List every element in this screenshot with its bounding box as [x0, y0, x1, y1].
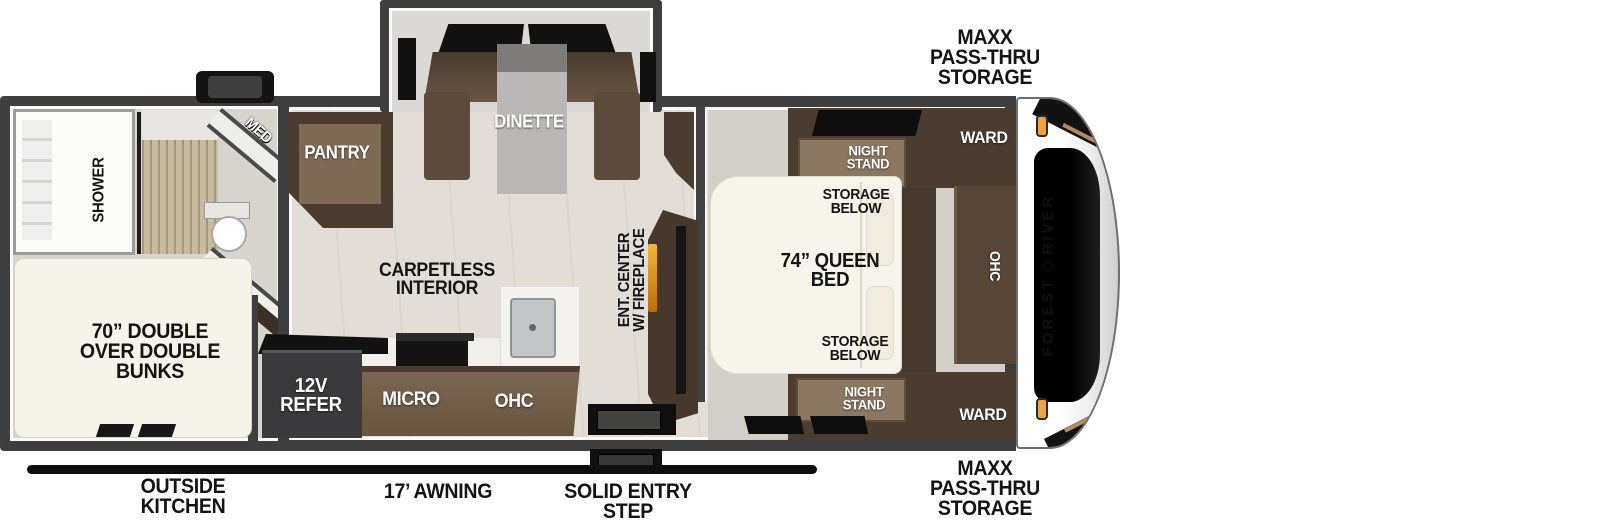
awning-line [27, 465, 817, 474]
dinette-label: DINETTE [494, 113, 564, 130]
storage-below-top-label: STORAGE BELOW [823, 188, 890, 217]
brand-word-forest: FOREST [1040, 278, 1057, 357]
slideout-side-window-right [640, 52, 656, 102]
forest-river-logo-icon [1042, 260, 1055, 273]
slideout-side-window-left [398, 38, 416, 100]
bedroom-top-window [812, 110, 922, 136]
bunk-ladder-mark-2 [138, 424, 176, 437]
bunk-ladder-mark-1 [96, 424, 134, 437]
bedroom-bottom-window-2 [810, 416, 868, 434]
micro-label: MICRO [382, 391, 440, 409]
cooktop [396, 341, 468, 366]
bath-divider [137, 112, 141, 254]
bath-curtain [142, 140, 218, 254]
dinette-bench-left [424, 92, 470, 180]
shower-label: SHOWER [91, 157, 106, 222]
entertainment-center [648, 210, 698, 424]
range-hood [396, 333, 474, 341]
solid-entry-step-label: SOLID ENTRY STEP [564, 482, 692, 522]
dinette-table-top [497, 44, 567, 72]
sink-drain [529, 324, 536, 331]
bunks-label: 70” DOUBLE OVER DOUBLE BUNKS [80, 322, 220, 382]
pantry-label: PANTRY [304, 144, 369, 161]
ward-bottom-label: WARD [959, 407, 1006, 423]
entry-inner-step [597, 410, 661, 430]
dinette-bench-right [594, 92, 640, 180]
carpetless-label: CARPETLESS INTERIOR [379, 262, 495, 298]
maxx-storage-top-label: MAXX PASS-THRU STORAGE [930, 28, 1040, 88]
refer-label: 12V REFER [280, 377, 342, 415]
floorplan-canvas: SHOWER MED 70” DOUBLE OVER DOUBLE BUNKS … [0, 0, 1600, 525]
toilet-bowl [211, 216, 247, 252]
ohc-kitchen-label: OHC [495, 393, 533, 411]
bedroom-bottom-window-1 [744, 416, 804, 434]
outside-kitchen-label: OUTSIDE KITCHEN [141, 477, 226, 517]
ent-center-label: ENT. CENTER W/ FIREPLACE [617, 228, 647, 331]
night-stand-bottom-label: NIGHT STAND [843, 386, 885, 413]
cap-marker-light-top [1036, 115, 1048, 137]
cap-marker-light-bottom [1036, 398, 1048, 420]
ohc-bedroom-label: OHC [987, 251, 1001, 281]
bedroom-ohc-cabinet [954, 186, 1016, 364]
night-stand-top-label: NIGHT STAND [847, 145, 889, 172]
forest-river-brand: FORESTRIVER [1040, 194, 1057, 357]
fireplace-glow [648, 244, 657, 312]
exterior-bracket-pad [208, 76, 262, 98]
storage-below-bottom-label: STORAGE BELOW [822, 335, 889, 364]
awning-label: 17’ AWNING [384, 482, 492, 502]
maxx-storage-bottom-label: MAXX PASS-THRU STORAGE [930, 459, 1040, 519]
pantry-face [299, 124, 381, 204]
queen-bed-label: 74” QUEEN BED [781, 252, 880, 290]
tv [676, 226, 686, 394]
front-cap: FORESTRIVER [1016, 97, 1120, 449]
shower-shelf-lines [22, 120, 52, 240]
ward-top-label: WARD [960, 130, 1007, 146]
brand-word-river: RIVER [1040, 194, 1057, 255]
